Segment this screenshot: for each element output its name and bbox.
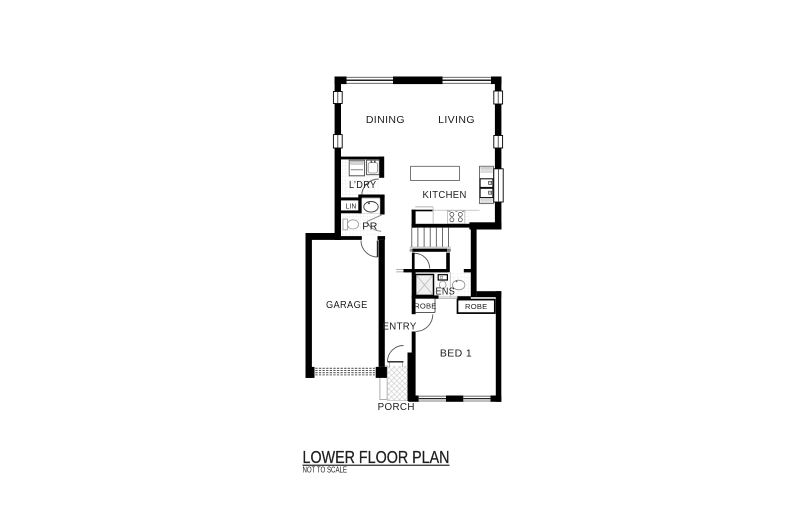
svg-text:PORCH: PORCH	[378, 401, 415, 413]
svg-text:BED 1: BED 1	[440, 348, 472, 360]
svg-text:LIN: LIN	[346, 201, 357, 210]
svg-text:LOWER FLOOR PLAN: LOWER FLOOR PLAN	[303, 447, 450, 467]
svg-text:ENTRY: ENTRY	[383, 320, 417, 332]
svg-text:PR: PR	[362, 220, 377, 232]
svg-text:L’DRY: L’DRY	[349, 179, 377, 191]
svg-text:NOT TO SCALE: NOT TO SCALE	[303, 466, 348, 475]
svg-text:LIVING: LIVING	[438, 114, 475, 126]
svg-text:GARAGE: GARAGE	[326, 299, 368, 311]
svg-text:ENS: ENS	[436, 285, 456, 297]
svg-text:DINING: DINING	[366, 114, 405, 126]
svg-text:KITCHEN: KITCHEN	[423, 189, 467, 201]
svg-text:ROBE: ROBE	[414, 301, 436, 310]
svg-text:ROBE: ROBE	[465, 302, 487, 311]
